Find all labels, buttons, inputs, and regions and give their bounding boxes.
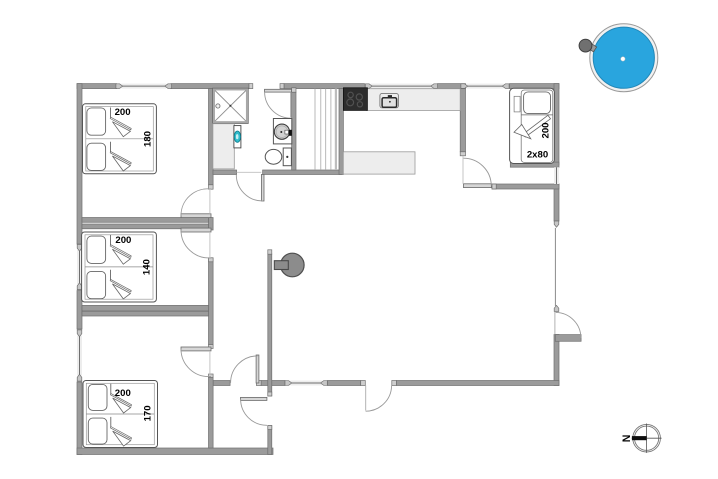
svg-text:N: N [621,435,633,443]
svg-text:200: 200 [115,107,131,118]
svg-text:180: 180 [142,131,153,147]
svg-text:200: 200 [115,388,131,399]
svg-text:2x80: 2x80 [527,149,548,160]
svg-text:170: 170 [142,405,153,421]
svg-text:200: 200 [115,235,131,246]
svg-text:200: 200 [541,122,552,138]
svg-text:140: 140 [142,259,153,275]
